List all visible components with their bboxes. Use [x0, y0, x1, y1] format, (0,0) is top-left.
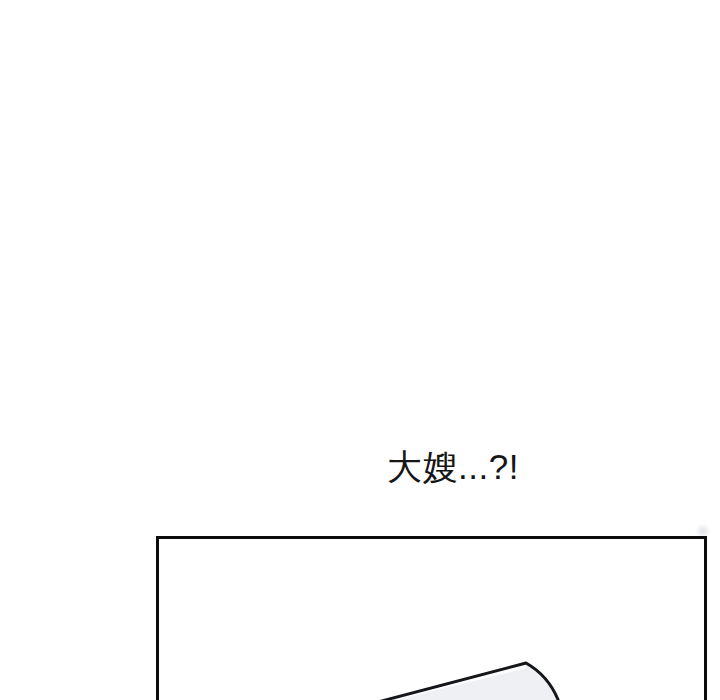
comic-page: 大嫂...?! — [0, 0, 720, 700]
comic-panel — [156, 536, 707, 700]
speech-text: 大嫂...?! — [387, 447, 519, 487]
